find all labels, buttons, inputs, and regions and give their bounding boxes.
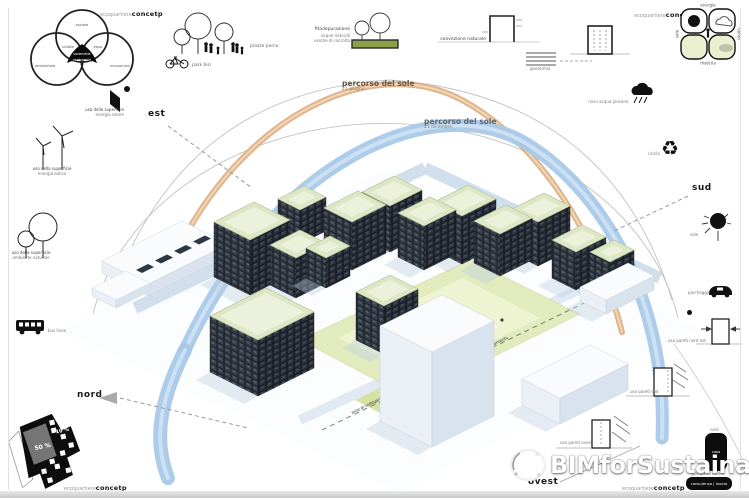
matrix-sun-icon [688, 15, 700, 27]
walls-ne-icon [696, 314, 744, 350]
walls-sud-icon [626, 362, 692, 402]
walls-sud-label: uso pareti sud [630, 389, 658, 394]
bike-label: park bici [192, 63, 211, 69]
winter-path-label: percorso del sole 21 dicembre [424, 118, 497, 131]
venn-overlap-left-label: vivibile [62, 45, 74, 49]
watermark-text: BIMforSustainability [550, 451, 749, 479]
matrix-person-icon [706, 28, 709, 37]
poster-canvas: asse di collegamento asse di collegament… [0, 0, 749, 498]
recycle-icon: ♻ [661, 136, 679, 160]
matrix-bottom-label: materia [700, 61, 716, 66]
bottom-bar [0, 491, 749, 498]
rain-cloud-icon [624, 78, 660, 106]
watermark-logo-icon [506, 444, 550, 486]
bike-icon [165, 54, 191, 70]
bus-icon [15, 319, 47, 336]
nature-label: uso della superficie ambiente naturale [2, 250, 60, 260]
matrix-left-label: sole [675, 29, 680, 38]
fito-label: fitodepurazione acque naturali vasche di… [300, 27, 350, 43]
compass-est: est [148, 109, 165, 119]
recycle-label: ricicla [648, 151, 660, 156]
park-people-icon [170, 10, 255, 58]
compass-nord: nord [77, 390, 102, 400]
convection-icon [438, 12, 548, 46]
frame-right [740, 8, 741, 490]
venn-left-label: ambientale [35, 64, 56, 68]
bus-label: bus linea [48, 328, 66, 333]
solar-label: uso della superficie energia solare [78, 107, 124, 117]
venn-top-label: sociale [76, 23, 89, 27]
green-basin-icon [350, 12, 406, 52]
note-label: note [710, 427, 719, 432]
parking-label: parcheggio [688, 290, 710, 295]
dot-marker [687, 310, 692, 315]
watermark: BIMforSustainability [506, 444, 749, 486]
sun-icon [698, 208, 740, 244]
site-plan-diagram: 50 % 10 % [8, 414, 84, 494]
wind-label: uso della superficie energia eolica [24, 166, 80, 176]
energy-matrix-diagram: energia materia sole vento [676, 2, 742, 66]
venn-right-label: economico [110, 64, 130, 68]
venn-center-label: sostenibile [73, 52, 90, 56]
park-label: piazze parco [250, 44, 278, 50]
summer-path-label: percorso del sole 21 giugno [342, 80, 415, 93]
geothermal-label: geotermia [530, 66, 551, 71]
rain-label: riuso acqua piovana [588, 99, 628, 104]
stack-tower-icon [570, 20, 634, 58]
walls-ne-label: uso pareti nord est [668, 338, 706, 343]
matrix-top-label: energia [700, 3, 716, 8]
car-icon [708, 284, 734, 299]
brand-mark-topleft: ecoquartiereconcetp [100, 10, 163, 18]
compass-sud: sud [692, 183, 712, 193]
sun-label: sole [690, 232, 698, 237]
venn-overlap-right-label: equo [94, 45, 102, 49]
venn-center-label2: realizzabile [73, 58, 91, 62]
frame-left [8, 8, 9, 490]
